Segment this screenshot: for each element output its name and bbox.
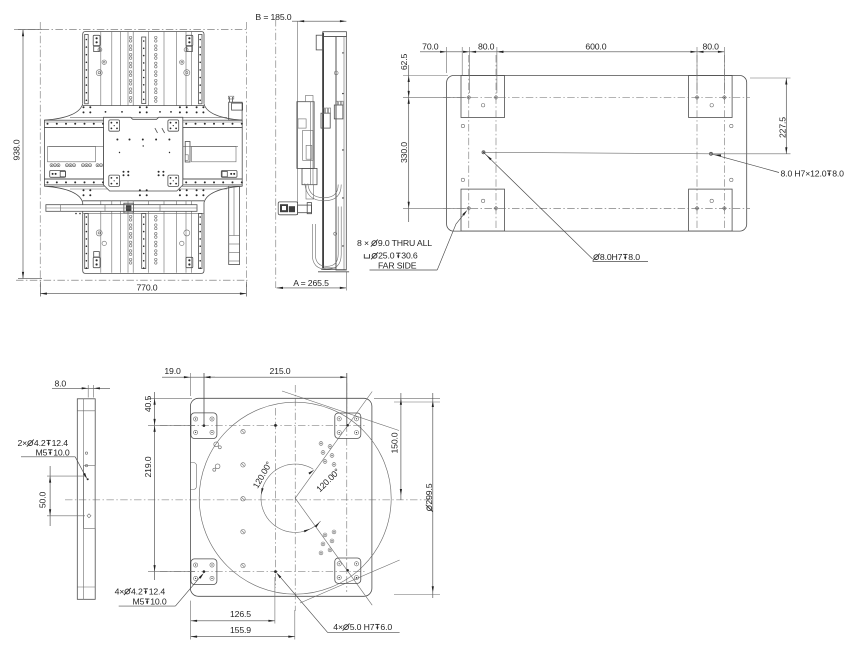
svg-text:62.5: 62.5 xyxy=(399,54,409,71)
svg-text:M5: M5 xyxy=(36,447,48,457)
svg-text:80.0: 80.0 xyxy=(478,41,495,51)
svg-text:219.0: 219.0 xyxy=(143,456,153,477)
svg-text:600.0: 600.0 xyxy=(585,41,606,51)
svg-text:4×: 4× xyxy=(115,586,125,596)
svg-text:8.0H7: 8.0H7 xyxy=(600,252,623,262)
svg-text:2×: 2× xyxy=(18,438,28,448)
svg-text:770.0: 770.0 xyxy=(137,283,158,293)
svg-text:FAR SIDE: FAR SIDE xyxy=(378,261,417,271)
svg-text:4.2: 4.2 xyxy=(131,586,143,596)
svg-text:8 ×: 8 × xyxy=(357,238,369,248)
svg-text:B = 185.0: B = 185.0 xyxy=(255,12,291,22)
svg-text:70.0: 70.0 xyxy=(422,41,439,51)
svg-text:299.5: 299.5 xyxy=(424,483,434,504)
svg-text:9.0 THRU ALL: 9.0 THRU ALL xyxy=(378,238,432,248)
svg-text:126.5: 126.5 xyxy=(230,609,251,619)
svg-text:155.9: 155.9 xyxy=(230,625,251,635)
svg-text:30.6: 30.6 xyxy=(401,251,418,261)
svg-text:330.0: 330.0 xyxy=(399,142,409,163)
svg-text:6.0: 6.0 xyxy=(380,622,392,632)
svg-text:150.0: 150.0 xyxy=(390,432,400,453)
svg-text:19.0: 19.0 xyxy=(164,366,181,376)
svg-text:5.0 H7: 5.0 H7 xyxy=(350,622,375,632)
svg-text:A = 265.5: A = 265.5 xyxy=(293,278,329,288)
svg-text:10.0: 10.0 xyxy=(53,447,70,457)
svg-text:8.0 H7×12.0: 8.0 H7×12.0 xyxy=(781,169,827,179)
svg-text:938.0: 938.0 xyxy=(12,139,22,160)
svg-text:4×: 4× xyxy=(333,622,343,632)
svg-text:50.0: 50.0 xyxy=(38,492,48,509)
svg-text:8.0: 8.0 xyxy=(832,169,844,179)
svg-text:40.5: 40.5 xyxy=(143,396,153,413)
svg-text:8.0: 8.0 xyxy=(628,252,640,262)
svg-text:80.0: 80.0 xyxy=(703,41,720,51)
svg-text:25.0: 25.0 xyxy=(378,251,395,261)
svg-text:10.0: 10.0 xyxy=(150,597,167,607)
svg-text:M5: M5 xyxy=(133,597,145,607)
svg-text:8.0: 8.0 xyxy=(54,379,66,389)
svg-text:12.4: 12.4 xyxy=(149,586,166,596)
svg-text:215.0: 215.0 xyxy=(270,366,291,376)
svg-text:227.5: 227.5 xyxy=(777,117,787,138)
